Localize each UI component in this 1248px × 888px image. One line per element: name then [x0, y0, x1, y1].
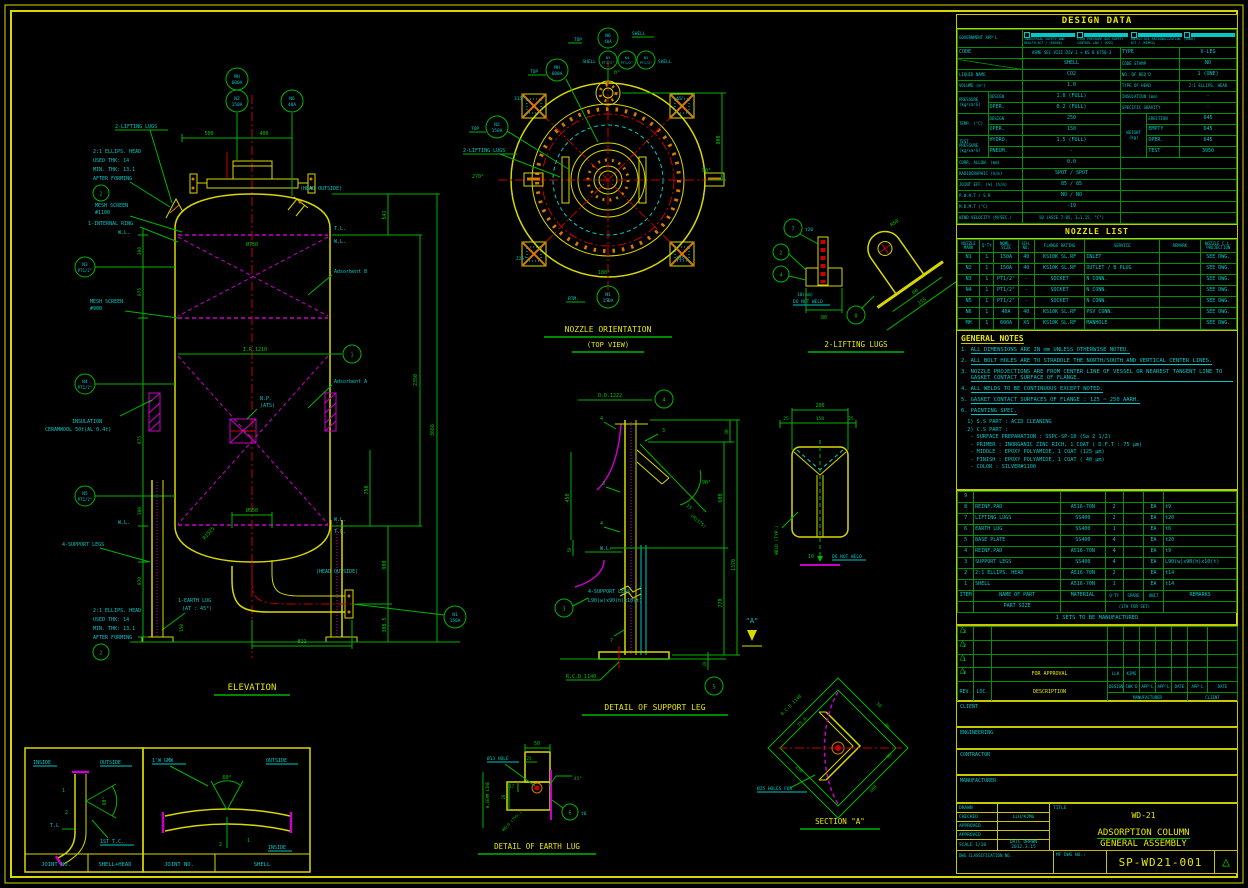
qty: 1 — [980, 297, 994, 308]
name: REINF.PAD — [974, 503, 1061, 514]
design_data-type: V-LEG — [1179, 48, 1236, 59]
design_data-hydro_label: HYDRO. — [988, 136, 1023, 147]
section-a-title: SECTION "A" — [815, 817, 865, 826]
lbl-jtl: T.L — [50, 823, 59, 829]
design_data-sg_label: SPECIFIC GRAVITY — [1120, 103, 1179, 114]
size: PT1/2" — [994, 275, 1018, 286]
design_data-w_empty: 645 — [1179, 125, 1236, 136]
lbl-head_note_1: 2:1 ELLIPS. HEAD — [93, 608, 141, 614]
lbl-r50: R50 — [889, 218, 900, 228]
lbl-weld_typ: WELD (TYP.) — [774, 525, 780, 555]
nozzle-row: N41PT1/2"-SOCKETN CONN.SEE DWG. — [958, 286, 1237, 297]
value: (NONE) — [1184, 38, 1235, 42]
revision-triangle-icon: △2 — [960, 641, 972, 651]
gov-approval-item: (NONE) — [1184, 32, 1235, 42]
revision-row: △0 FOR APPROVAL LLHKJMG — [958, 668, 1238, 682]
lifting-lugs-title: 2-LIFTING LUGS — [824, 340, 888, 349]
nozzle-orientation-view: 800 0° 90° 270° 180° 315° 45° 225° 135° … — [463, 28, 726, 352]
lbl-deg270: 270° — [472, 174, 484, 180]
remark — [1160, 286, 1200, 297]
general-note: 5.GASKET CONTACT SURFACES OF FLANGE : 12… — [961, 397, 1233, 404]
lbl-b7: 7 — [791, 227, 794, 233]
nozzle_list-headers-4: FLANGE RATING — [1034, 240, 1085, 253]
corner-bracket-225 — [522, 242, 546, 266]
lbl-phi550: Ø550 — [246, 507, 258, 514]
nozzle_list-headers-7: NOZZLE C.L. PROJECTION — [1200, 240, 1236, 253]
value: - SURFACE PREPARATION : SSPC-SP-10 (Sa 2… — [961, 434, 1233, 442]
bom-row: 7LIFTING LUGSSS4002EAt20 — [958, 514, 1237, 525]
design_data-erection_label: ERECTION — [1147, 114, 1180, 125]
value: ENERGY USE RATIONALIZATION ACT / (KEMCO) — [1131, 38, 1182, 45]
qty: 1 — [980, 319, 994, 330]
lbl-b4: 4 — [662, 398, 665, 404]
company-logo-icon: △ — [1214, 851, 1237, 873]
design_data-empty_label: EMPTY — [1147, 125, 1180, 136]
lbl-head_note_3: MIN. THK: 13.1 — [93, 167, 135, 173]
size: 600A — [994, 319, 1018, 330]
bom-footer-item: ITEM — [958, 591, 974, 602]
lbl-t6: t6 — [581, 811, 587, 817]
lbl-el_25: 25 — [527, 756, 532, 761]
lbl-d10: 10 — [808, 554, 814, 560]
revision-triangle-icon: △0 — [960, 668, 972, 678]
elevation-view: I.R.1210 1 500 400 MH600A N2150A N640A 2… — [45, 68, 466, 695]
lbl-joint_no: JOINT NO. — [41, 862, 71, 868]
flange: KS10K SL.RF — [1034, 319, 1085, 330]
drawing-number: SP-WD21-001 — [1107, 851, 1214, 873]
lbl-outside: OUTSIDE — [266, 758, 287, 764]
material: SS400 — [1061, 525, 1105, 536]
item: 9 — [958, 492, 974, 503]
lbl-ir_1210: I.R.1210 — [243, 347, 267, 353]
design_data-head: 2:1 ELLIPS. HEAD — [1179, 81, 1236, 92]
nozzle-list-table: NOZZLE MARKQ'TYNOML. SIZESCH. NO.FLANGE … — [957, 239, 1237, 330]
lbl-shell_head: SHELL+HEAD — [98, 862, 131, 868]
earth-lug-title: DETAIL OF EARTH LUG — [494, 842, 580, 851]
lbl-pt_half: PT1/2" — [640, 61, 653, 65]
lbl-wl: W.L. — [334, 239, 346, 245]
lbl-rcd1140: R.C.D 1140 — [566, 674, 596, 680]
item: 4 — [958, 547, 974, 558]
lbl-deg90: 90° — [702, 480, 711, 486]
lbl-outside: OUTSIDE — [100, 760, 121, 766]
desc — [992, 640, 1108, 654]
lbl-bcd1140: B.C.D 1140 — [780, 693, 804, 717]
title_block-checked_label: CHECKED — [957, 813, 998, 821]
title_block-scale_label: SCALE — [959, 843, 973, 848]
appl2 — [1156, 668, 1172, 682]
design — [1108, 640, 1124, 654]
design_data-w_erection: 645 — [1179, 114, 1236, 125]
lbl-pt_half: PT1/2" — [78, 385, 92, 390]
design_data-pneum: - — [1023, 147, 1121, 158]
lbl-d450: 450 — [565, 493, 571, 502]
title_block-approved_label: APPROVED — [957, 822, 998, 830]
rev: 0 — [964, 671, 966, 676]
unit: EA — [1143, 580, 1163, 591]
lbl-deg180: 180° — [598, 270, 610, 276]
bom-row: 4REINF.PADA516-70N4EAt9 — [958, 547, 1237, 558]
desc — [992, 654, 1108, 668]
bom-footer-qty: Q'TY — [1105, 591, 1123, 602]
material: A516-70N — [1061, 503, 1105, 514]
lbl-head_note_2: USED THK: 14 — [93, 158, 129, 164]
gov-approval-item: HIGH PRESSURE GAS SAFETY CONTROL LAW / (… — [1077, 32, 1128, 45]
design_data-joint: 85 / 85 — [1023, 180, 1121, 191]
title_block-drawn_label: DRAWN — [957, 804, 998, 812]
sections-client: CLIENT — [960, 704, 978, 710]
appl3 — [1188, 627, 1208, 641]
lbl-el_50: 50 — [534, 741, 540, 747]
sections-contractor: CONTRACTOR — [960, 752, 990, 758]
mark: N2 — [958, 264, 980, 275]
lbl-mesh_1100: #1100 — [95, 210, 110, 216]
nozzle_list-headers-2: NOML. SIZE — [994, 240, 1018, 253]
no: 6. — [961, 408, 968, 415]
bom-footer-material: MATERIAL — [1061, 591, 1105, 602]
right-panel: DESIGN DATA GOVERNMENT APP'L INDUSTRIAL … — [956, 14, 1238, 874]
name: SHELL — [974, 580, 1061, 591]
bom-panel: 9 8REINF.PADA516-70N2EAt9 7LIFTING LUGSS… — [956, 490, 1238, 625]
joint-detail-shell: 1'W GMW OUTSIDE 60° 2 1 INSIDE JOINT NO.… — [143, 748, 310, 872]
qty: 1 — [1105, 580, 1123, 591]
design_data-stamp: NO — [1179, 59, 1236, 70]
sch: - — [1018, 275, 1034, 286]
remark — [1160, 253, 1200, 264]
nozzle-row: N6140A40KS10K SL.RFPSV CONN.SEE DWG. — [958, 308, 1237, 319]
appl1 — [1140, 640, 1156, 654]
remarks: t9 — [1164, 547, 1237, 558]
nozzle-list-title: NOZZLE LIST — [957, 225, 1237, 239]
item: 2 — [958, 569, 974, 580]
value: - COLOR : SILVER#1100 — [961, 464, 1233, 472]
title_block-title_label: TITLE — [1053, 806, 1067, 811]
support-leg-detail: O.D.1222 4 90° 15 (R1375) 4 3 3 4 7 30 6… — [555, 390, 762, 715]
design_data-radio: SPOT / SPOT — [1023, 169, 1121, 180]
spare — [1123, 492, 1143, 503]
spare — [1123, 580, 1143, 591]
lbl-tl: T.L. — [334, 226, 346, 232]
mark: MH — [958, 319, 980, 330]
lbl-el_17: 17 — [509, 784, 514, 789]
lbl-do_not_weld: DO NOT WELD — [793, 299, 823, 305]
design_data-shell: SHELL — [1023, 59, 1121, 70]
chkd — [1124, 627, 1140, 641]
design_data-mdmt: -19 — [1023, 202, 1121, 213]
sch: XS — [1018, 319, 1034, 330]
bom-footer-unit: UNIT — [1143, 591, 1163, 602]
design_data-pwht: NO / NO — [1023, 191, 1121, 202]
service: PSV CONN. — [1085, 308, 1160, 319]
lbl-d750: 750 — [364, 485, 370, 494]
item: 6 — [958, 525, 974, 536]
bom-footer-qty2: (1TH FOR SET) — [1105, 602, 1164, 613]
bom-row: 6EARTH LUGSS4001EAt6 — [958, 525, 1237, 536]
lbl-mh_size: 600A — [232, 80, 243, 86]
remarks: t14 — [1164, 569, 1237, 580]
qty: 2 — [1105, 514, 1123, 525]
joint-detail-shell-head: INSIDE OUTSIDE 60° 1 2 T.L 1ST T.C. JOIN… — [25, 748, 143, 872]
lbl-d541: 541 — [382, 210, 388, 219]
lbl-d3085: 308.5 — [382, 617, 388, 632]
value: HIGH PRESSURE GAS SAFETY CONTROL LAW / (… — [1077, 38, 1128, 45]
design_data-volume: 1.0 — [1023, 81, 1121, 92]
date2 — [1208, 627, 1238, 641]
bom-footer-remarks: REMARKS — [1164, 591, 1237, 602]
proj: SEE DWG. — [1200, 275, 1236, 286]
lbl-d875: 875 — [137, 288, 143, 296]
remarks: t14 — [1164, 580, 1237, 591]
value: - PRIMER : INORGANIC ZINC RICH, 1 COAT (… — [961, 442, 1233, 450]
no: 3. — [961, 369, 968, 382]
design_data-type_label: TYPE — [1120, 48, 1179, 59]
lbl-np_2: (ATS) — [260, 403, 275, 409]
revision-panel: △3 △2 △1 △0 FOR APP — [956, 625, 1238, 701]
size: 40A — [994, 308, 1018, 319]
lbl-n1_size: 150A — [450, 618, 461, 624]
unit: EA — [1143, 558, 1163, 569]
lbl-d800: 800 — [716, 135, 722, 144]
remarks: L90(w)x90(h)x10(t) — [1164, 558, 1237, 569]
appl3 — [1188, 640, 1208, 654]
loc — [974, 668, 992, 682]
bom-row: 5BASE PLATESS4004EAt20 — [958, 536, 1237, 547]
qty: 4 — [1105, 558, 1123, 569]
lbl-j1: 1 — [247, 838, 250, 844]
general-note: 2.ALL BOLT HOLES ARE TO STRADDLE THE NOR… — [961, 358, 1233, 365]
design_data-pneum_label: PNEUM. — [988, 147, 1023, 158]
item: 1 — [958, 580, 974, 591]
lbl-phi750: Ø750 — [246, 241, 258, 248]
lbl-support_legs: 4-SUPPORT LEGS — [588, 589, 630, 595]
nozzle-row: N31PT1/2"-SOCKETN CONN.SEE DWG. — [958, 275, 1237, 286]
revisions-h-design: DESIGN — [1108, 682, 1124, 693]
lbl-n1: N1 — [452, 612, 458, 618]
lbl-head_note_2: USED THK: 14 — [93, 617, 129, 623]
material: A516-70N — [1061, 569, 1105, 580]
no: 4. — [961, 386, 968, 393]
bom-row: 8REINF.PADA516-70N2EAt9 — [958, 503, 1237, 514]
lbl-n6_size: 40A — [288, 102, 296, 108]
unit: EA — [1143, 547, 1163, 558]
nozzle-list-panel: NOZZLE LIST NOZZLE MARKQ'TYNOML. SIZESCH… — [956, 224, 1238, 330]
appl3 — [1188, 654, 1208, 668]
service: MANHOLE — [1085, 319, 1160, 330]
lbl-head_note_4: AFTER FORMING — [93, 635, 132, 641]
name: EARTH LUG — [974, 525, 1061, 536]
value: 2) C.S PART : — [961, 427, 1233, 435]
design_data-design_label: DESIGN — [988, 92, 1023, 103]
design_data-w_oper: 645 — [1179, 136, 1236, 147]
spare — [1123, 536, 1143, 547]
lbl-leg_spec: L90(w)x90(h)x10(t) — [588, 598, 642, 604]
flange: KS10K SL.RF — [1034, 264, 1085, 275]
qty: 1 — [1105, 525, 1123, 536]
qty: 1 — [980, 264, 994, 275]
lbl-wl: W.L. — [118, 520, 130, 526]
design-data-table: GOVERNMENT APP'L INDUSTRIAL SAFETY AND H… — [957, 29, 1237, 235]
size: PT1/2" — [994, 286, 1018, 297]
spare — [1123, 569, 1143, 580]
lbl-earth_lug_1: 1-EARTH LUG — [178, 598, 211, 604]
name: BASE PLATE — [974, 536, 1061, 547]
design_data-oper_label: OPER. — [988, 103, 1023, 114]
mark: N3 — [958, 275, 980, 286]
design_data-reqd: 1 (ONE) — [1179, 70, 1236, 81]
lbl-b150: 150 — [794, 764, 804, 774]
title-block-signoff: DRAWN CHECKEDLLH/KJMG APPROVED APPROVED … — [957, 804, 1050, 850]
engineering-section: ENGINEERING — [956, 727, 1238, 749]
revision-row: △3 — [958, 627, 1238, 641]
bom-footer-name: NAME OF PART — [974, 591, 1061, 602]
design_data-p_oper: 0.2 (FULL) — [1023, 103, 1121, 114]
lbl-n6: N6 — [289, 96, 295, 102]
lbl-d811: 811 — [297, 639, 306, 645]
design_data-radio_label: RADIOGRAPHIC (h/m) — [958, 169, 1023, 180]
lbl-head_outside: (HEAD OUTSIDE) — [300, 186, 342, 192]
lbl-j1: 1 — [62, 788, 65, 794]
lbl-d600: 600 — [718, 493, 724, 502]
lbl-deg315: 315° — [514, 96, 525, 102]
lbl-phi13: Ø13 HOLE — [487, 755, 509, 762]
lbl-btm: BTM. — [568, 296, 579, 302]
orientation-title: NOZZLE ORIENTATION — [565, 325, 652, 334]
revisions-h-appl: APP'L — [1156, 682, 1172, 693]
rev: 2 — [964, 644, 966, 649]
lbl-n1_size: 150A — [603, 298, 614, 304]
flange: KS10K SL.RF — [1034, 253, 1085, 264]
service: INLET — [1085, 253, 1160, 264]
lbl-d150: 150 — [179, 624, 185, 632]
remarks: t9 — [1164, 503, 1237, 514]
lbl-w7: 7 — [610, 638, 613, 644]
loc — [974, 654, 992, 668]
unit: EA — [1143, 536, 1163, 547]
appl2 — [1156, 640, 1172, 654]
name: REINF.PAD — [974, 547, 1061, 558]
lbl-orientation_sub: (TOP VIEW) — [587, 341, 629, 349]
lbl-deg45: 45° — [676, 96, 684, 102]
lbl-d50: 50 — [567, 547, 572, 552]
lbl-weld_typ: WELD (TYP.) — [501, 810, 523, 832]
remark — [1160, 264, 1200, 275]
lbl-od1222: O.D.1222 — [598, 393, 622, 399]
mark: N6 — [958, 308, 980, 319]
design_data-code_label: CODE — [958, 48, 1023, 59]
lbl-t20: t20 — [805, 227, 813, 233]
title_block-checked: LLH/KJMG — [998, 815, 1049, 820]
design_data-p_design: 1.0 (FULL) — [1023, 92, 1121, 103]
elevation-title: ELEVATION — [228, 683, 277, 693]
appl1 — [1140, 654, 1156, 668]
qty: 1 — [980, 275, 994, 286]
corner-bracket-135 — [670, 242, 694, 266]
proj: SEE DWG. — [1200, 253, 1236, 264]
general-note: 6.PAINTING SPEC. — [961, 408, 1233, 415]
lbl-deg90: 90° — [702, 168, 711, 174]
lbl-d200: 200 — [137, 247, 143, 255]
lbl-do_not_weld: DO NOT WELD — [832, 554, 862, 560]
service: N CONN. — [1085, 286, 1160, 297]
design_data-test_label: TEST PRESSURE (kg/cm²G) — [958, 136, 989, 158]
design_data-corr_label: CORR. ALLOW. (mm) — [958, 158, 1023, 169]
gov-approval-item: ENERGY USE RATIONALIZATION ACT / (KEMCO) — [1131, 32, 1182, 45]
bom-row: 22:1 ELLIPS. HEADA516-70N2EAt14 — [958, 569, 1237, 580]
lbl-top: TOP — [574, 37, 582, 43]
text: NOZZLE PROJECTIONS ARE FROM CENTER LINE … — [971, 369, 1233, 382]
chkd — [1124, 640, 1140, 654]
lbl-d3666: 3666 — [430, 424, 436, 436]
manufacturer-section: MANUFACTURER — [956, 775, 1238, 803]
revision-table: △3 △2 △1 △0 FOR APP — [957, 626, 1238, 704]
design_data-t_design: 250 — [1023, 114, 1121, 125]
lbl-d25: 25 — [848, 416, 854, 422]
design_data-oper_label: OPER. — [988, 125, 1023, 136]
revisions-h-appl: APP'L — [1188, 682, 1208, 693]
lbl-mesh_900: #900 — [90, 306, 102, 312]
lbl-pt_half: PT1/2" — [78, 268, 92, 273]
lbl-d875: 875 — [137, 436, 143, 444]
revision-row: △1 — [958, 654, 1238, 668]
lbl-b1: 1 — [350, 353, 353, 359]
text: GASKET CONTACT SURFACES OF FLANGE : 125 … — [971, 397, 1140, 404]
bom-row: 1SHELLA516-70N1EAt14 — [958, 580, 1237, 591]
lbl-support_legs: 4-SUPPORT LEGS — [62, 542, 104, 548]
lbl-b2: 2 — [99, 651, 102, 657]
lbl-d20: 20 — [702, 661, 707, 666]
lbl-insulation_1: INSULATION — [72, 419, 102, 425]
lifting-lugs-detail: 7 t20 2 4 10(mm) DO NOT WELD 80 60 155 R… — [773, 208, 961, 352]
revisions-h-date: DATE — [1172, 682, 1188, 693]
design — [1108, 654, 1124, 668]
lbl-shell: SHELL — [254, 862, 271, 868]
design_data-temp_label: TEMP. (°C) — [958, 114, 989, 136]
drawing-title-line2: ADSORPTION COLUMN — [1097, 828, 1189, 839]
material: SS400 — [1061, 558, 1105, 569]
chkd — [1124, 654, 1140, 668]
lbl-d1370: 1370 — [731, 559, 737, 571]
date2 — [1208, 654, 1238, 668]
loc — [974, 640, 992, 654]
qty: 1 — [980, 253, 994, 264]
design_data-head_label: TYPE OF HEAD — [1120, 81, 1179, 92]
loc — [974, 627, 992, 641]
lbl-d900: 900 — [382, 560, 388, 569]
appl1 — [1140, 627, 1156, 641]
appl1 — [1140, 668, 1156, 682]
lifting-lugs-callout: 2-LIFTING LUGS — [115, 124, 157, 130]
lbl-b3: 3 — [562, 607, 565, 613]
design_data-pressure_label: PRESSURE (kg/cm²G) — [958, 92, 989, 114]
lbl-n5: N5 — [644, 56, 648, 60]
revision-row: △2 — [958, 640, 1238, 654]
lbl-pt_half: PT1/2" — [621, 61, 634, 65]
title_block-approved2_label: APPROVED — [957, 831, 998, 839]
lbl-top: TOP — [530, 69, 538, 75]
lbl-shell: SHELL — [658, 59, 672, 65]
lbl-adsorbent_b: Adsorbent B — [334, 269, 367, 275]
lbl-pt_half: PT1/2" — [602, 61, 615, 65]
spare — [1123, 514, 1143, 525]
service: OUTLET / B PLUG — [1085, 264, 1160, 275]
design-data-panel: DESIGN DATA GOVERNMENT APP'L INDUSTRIAL … — [956, 14, 1238, 224]
flange: SOCKET — [1034, 286, 1085, 297]
corner-bracket-315 — [522, 94, 546, 118]
lbl-d870: 870 — [137, 577, 143, 585]
sch: 40 — [1018, 253, 1034, 264]
lbl-tl: T.L. — [334, 529, 346, 535]
design_data-gov_label: GOVERNMENT APP'L — [958, 30, 1023, 48]
